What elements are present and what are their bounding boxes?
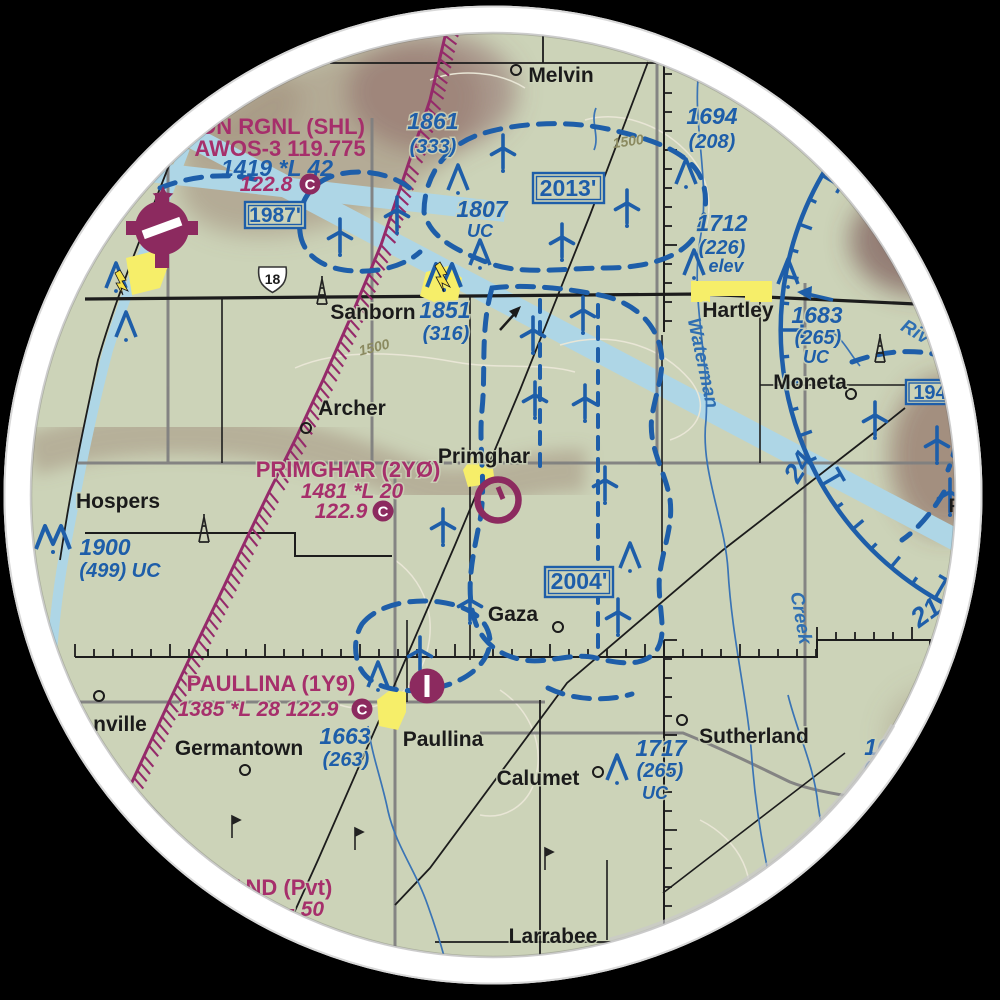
hatch-tick — [916, 28, 927, 37]
paullina-airport-symbol — [410, 669, 445, 704]
hatched-line — [925, 20, 951, 125]
hatch-tick — [112, 828, 122, 838]
obstacle-1900-elev: 1900 — [79, 534, 130, 560]
town-sanborn: Sanborn — [330, 301, 415, 324]
town-germantown: Germantown — [175, 737, 303, 760]
hatch-tick — [929, 80, 940, 89]
hatch-tick — [933, 95, 944, 104]
compass-tick — [781, 303, 789, 304]
mef-2013: 2013' — [540, 175, 597, 201]
hatch-tick — [924, 59, 935, 68]
hatch-tick — [922, 51, 933, 60]
sticker-stage: 18 ON RGNL (SHL) AWOS-3 119.775 1419 *L … — [0, 0, 1000, 1000]
compass-tick — [853, 131, 864, 140]
town-archer: Archer — [318, 397, 386, 420]
obstacle-1861-elev: 1861 — [407, 108, 458, 134]
primghar-apt-freq: 122.9 — [315, 500, 368, 523]
obstacle-1900-agl: (499) UC — [79, 560, 161, 582]
hatch-tick — [931, 88, 942, 97]
town-gaza: Gaza — [488, 603, 539, 626]
obstacle-1663-agl: (263) — [323, 749, 370, 771]
obstacle-1694-agl: (208) — [689, 131, 736, 153]
obstacle-1717-agl: (265) — [637, 760, 684, 782]
town-melvin: Melvin — [528, 64, 593, 87]
hatch-tick — [920, 43, 931, 52]
obstacle-1717-elev: 1717 — [635, 735, 687, 761]
town-moneta: Moneta — [773, 371, 847, 394]
runway-bar — [425, 675, 430, 697]
town-calumet: Calumet — [497, 767, 580, 790]
hatch-tick — [918, 35, 929, 44]
obstacle-1807-elev: 1807 — [456, 196, 508, 222]
obstacle-1851-agl: (316) — [423, 323, 470, 345]
obstacle-1712-note: elev — [708, 256, 744, 276]
obstacle-1663-elev: 1663 — [319, 723, 370, 749]
obstacle-1683-agl: (265) — [795, 327, 842, 349]
paullina-freq-c: C — [357, 702, 368, 719]
paullina-apt-data: 1385 *L 28 122.9 — [178, 698, 339, 721]
obstacle-1712-elev: 1712 — [696, 210, 747, 236]
hatch-tick — [115, 821, 125, 831]
obstacle-1851-elev: 1851 — [419, 297, 470, 323]
obstacle-1807-note: UC — [467, 221, 494, 241]
sectional-chart-map: 18 ON RGNL (SHL) AWOS-3 119.775 1419 *L … — [0, 0, 1000, 1000]
obstacle-1683-elev: 1683 — [791, 302, 842, 328]
compass-tick — [984, 608, 989, 621]
hatch-tick — [914, 20, 925, 29]
hatch-tick — [935, 103, 946, 112]
obstacle-1694-elev: 1694 — [686, 103, 737, 129]
compass-tick — [791, 408, 799, 410]
town-hartley: Hartley — [702, 299, 774, 322]
primghar-freq-c: C — [378, 504, 389, 521]
us18-label: 18 — [265, 271, 281, 287]
hatch-tick — [109, 836, 119, 846]
hatch-tick — [936, 111, 947, 120]
town-paullina: Paullina — [403, 728, 484, 751]
obstacle-1717-note: UC — [642, 783, 669, 803]
compass-tick — [781, 356, 789, 357]
town-hospers: Hospers — [76, 490, 160, 513]
town-larrabee: Larrabee — [509, 925, 598, 948]
town-primghar: Primghar — [438, 445, 530, 468]
primghar-apt-name: PRIMGHAR (2YØ) — [256, 457, 441, 482]
obstacle-1861-agl: (333) — [410, 136, 457, 158]
sheldon-freq: 122.8 — [240, 173, 293, 196]
hatch-tick — [928, 72, 939, 81]
town-sutherland: Sutherland — [699, 725, 809, 748]
obstacle-1683-note: UC — [803, 347, 830, 367]
sheldon-freq-c: C — [305, 177, 316, 194]
mef-2004: 2004' — [551, 568, 608, 594]
paullina-apt-name: PAULLINA (1Y9) — [187, 671, 356, 696]
sheldon-mef: 1987' — [249, 204, 301, 227]
compass-tick — [791, 250, 799, 252]
town-granville-partial: nville — [93, 713, 147, 736]
